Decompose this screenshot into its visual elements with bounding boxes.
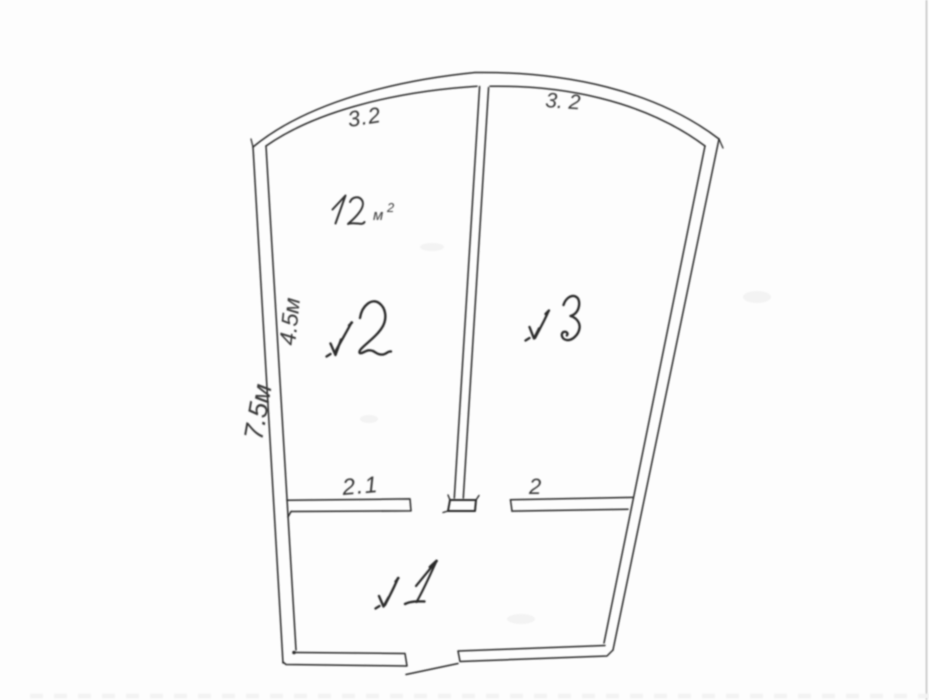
svg-text:3.2: 3.2: [346, 102, 383, 132]
svg-text:2: 2: [528, 474, 541, 499]
svg-text:3. 2: 3. 2: [545, 89, 582, 114]
svg-text:м: м: [373, 207, 383, 224]
svg-text:2: 2: [386, 200, 395, 215]
svg-text:4.5м: 4.5м: [274, 296, 305, 346]
svg-text:2.1: 2.1: [340, 471, 380, 500]
